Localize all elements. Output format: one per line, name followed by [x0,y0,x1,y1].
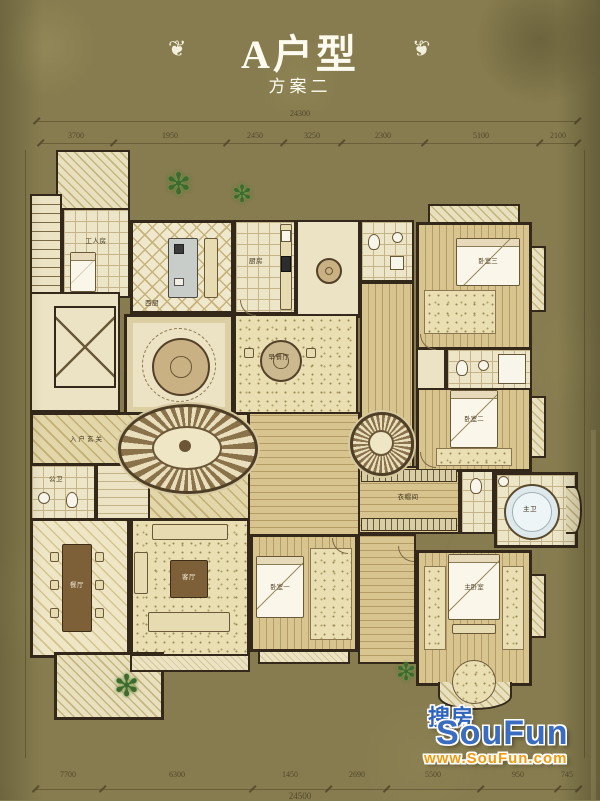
dim-top-seg-label: 3250 [282,132,342,140]
hall-medallion-core-icon [368,430,394,456]
stove-icon [281,256,291,272]
washbasin-icon [38,492,50,504]
master-rug-icon [502,566,524,650]
master-rug-icon [424,566,446,650]
island-cooktop-icon [174,244,184,254]
dining-chair-icon [95,552,104,562]
elevator [54,306,116,388]
breakfast-chair-icon [306,348,316,358]
hall-bed23 [416,348,446,390]
floorplan-page: { "title": { "main": "A户型", "subtitle": … [0,0,600,800]
dim-top-seg-label: 1950 [140,132,200,140]
dim-line-bottom [35,789,578,790]
room-kitchen-label: 厨房 [238,258,274,266]
master-bath-bay [566,486,582,534]
room-living-label: 客厅 [170,574,208,582]
bedroom3-rug-icon [424,290,496,334]
dim-bottom-seg-label: 745 [550,771,584,779]
page-edge-strip [591,430,596,800]
room-bedroom2-label: 卧室二 [450,416,498,424]
plant-icon: ✻ [232,182,252,206]
dim-bottom-seg-label: 1450 [260,771,320,779]
bedroom1-rug-icon [310,548,352,640]
sink-icon [281,230,291,242]
watermark-brand-en: SouFun [436,714,569,753]
dining-chair-icon [95,608,104,618]
pantry-table-icon [316,258,342,284]
shower-tray-icon [498,354,526,384]
washer-icon [390,256,404,270]
balcony-top-left [56,150,130,210]
dim-top-seg-label: 2300 [353,132,413,140]
dim-line-left [25,150,26,758]
staircase [30,194,62,294]
room-foyer-label: 入户玄关 [52,436,122,444]
dining-chair-icon [50,552,59,562]
dim-bottom-seg-label: 7700 [38,771,98,779]
dining-chair-icon [50,580,59,590]
ornament-left-icon: ❦ [168,36,186,62]
bath-top [360,220,414,282]
plant-icon: ✻ [166,170,191,200]
dim-bottom-seg-label: 5500 [403,771,463,779]
watermark-url: www.SouFun.com [424,750,567,767]
bedroom2-rug-icon [436,448,512,466]
window-strip-living [130,654,250,672]
plant-icon: ✻ [396,660,416,684]
dining-chair-icon [95,580,104,590]
room-breakfast-label: 早餐厅 [252,354,306,362]
sofa-icon [152,524,228,540]
room-west-kitchen-label: 西厨 [132,300,172,308]
dim-top-seg-label: 3700 [46,132,106,140]
floor-plan: 工人房 西厨 厨房 早餐厅 入户玄关 公卫 [0,0,600,800]
page-subtitle: 方案二 [0,72,600,97]
bedroom3-bay [532,246,546,312]
toilet-icon [456,360,468,376]
dim-top-seg-label: 2100 [528,132,588,140]
bedroom2-bay [532,396,546,458]
island-sink-icon [174,278,184,286]
kitchen-cabinet-icon [204,238,218,298]
master-bay-right [532,574,546,638]
ornament-right-icon: ❦ [412,36,430,62]
dim-top-seg-label: 2450 [225,132,285,140]
room-public-bath-label: 公卫 [38,476,74,484]
dim-top-seg-label: 5100 [451,132,511,140]
dim-bottom-seg-label: 950 [498,771,538,779]
sofa-icon [148,612,230,632]
dim-bottom-seg-label: 2690 [327,771,387,779]
dim-bottom-seg-label: 6300 [147,771,207,779]
room-master-label: 主卧室 [448,584,500,592]
dining-chair-icon [50,608,59,618]
room-master-bath-label: 主卫 [512,506,548,514]
room-worker-label: 工人房 [66,238,126,246]
dim-line-right [584,150,585,758]
round-table-icon [152,338,210,396]
toilet-icon [66,492,78,508]
dim-top-total-label: 24300 [270,110,330,118]
room-closet-label: 衣帽间 [378,494,438,502]
room-bedroom3-label: 卧室三 [456,258,520,266]
washbasin-icon [498,476,509,487]
balcony-top-right [428,204,520,224]
armchair-icon [134,552,148,594]
room-bedroom1-label: 卧室一 [256,584,304,592]
washbasin-icon [478,360,489,371]
hall-center [248,412,360,536]
room-dining-label: 餐厅 [62,582,92,590]
dim-line-top-total [36,121,578,122]
window-strip-bedroom1 [258,650,350,664]
toilet-icon [470,478,482,494]
medallion-center-dot-icon [179,440,191,452]
dim-line-top-segments [40,143,577,144]
worker-bed-icon [70,252,96,292]
wardrobe-icon [361,518,457,531]
plant-icon: ✻ [114,672,139,702]
washbasin-icon [392,232,403,243]
bed-bench-icon [452,624,496,634]
master-round-rug-icon [452,660,496,704]
shower-room [460,466,494,534]
toilet-icon [368,234,380,250]
